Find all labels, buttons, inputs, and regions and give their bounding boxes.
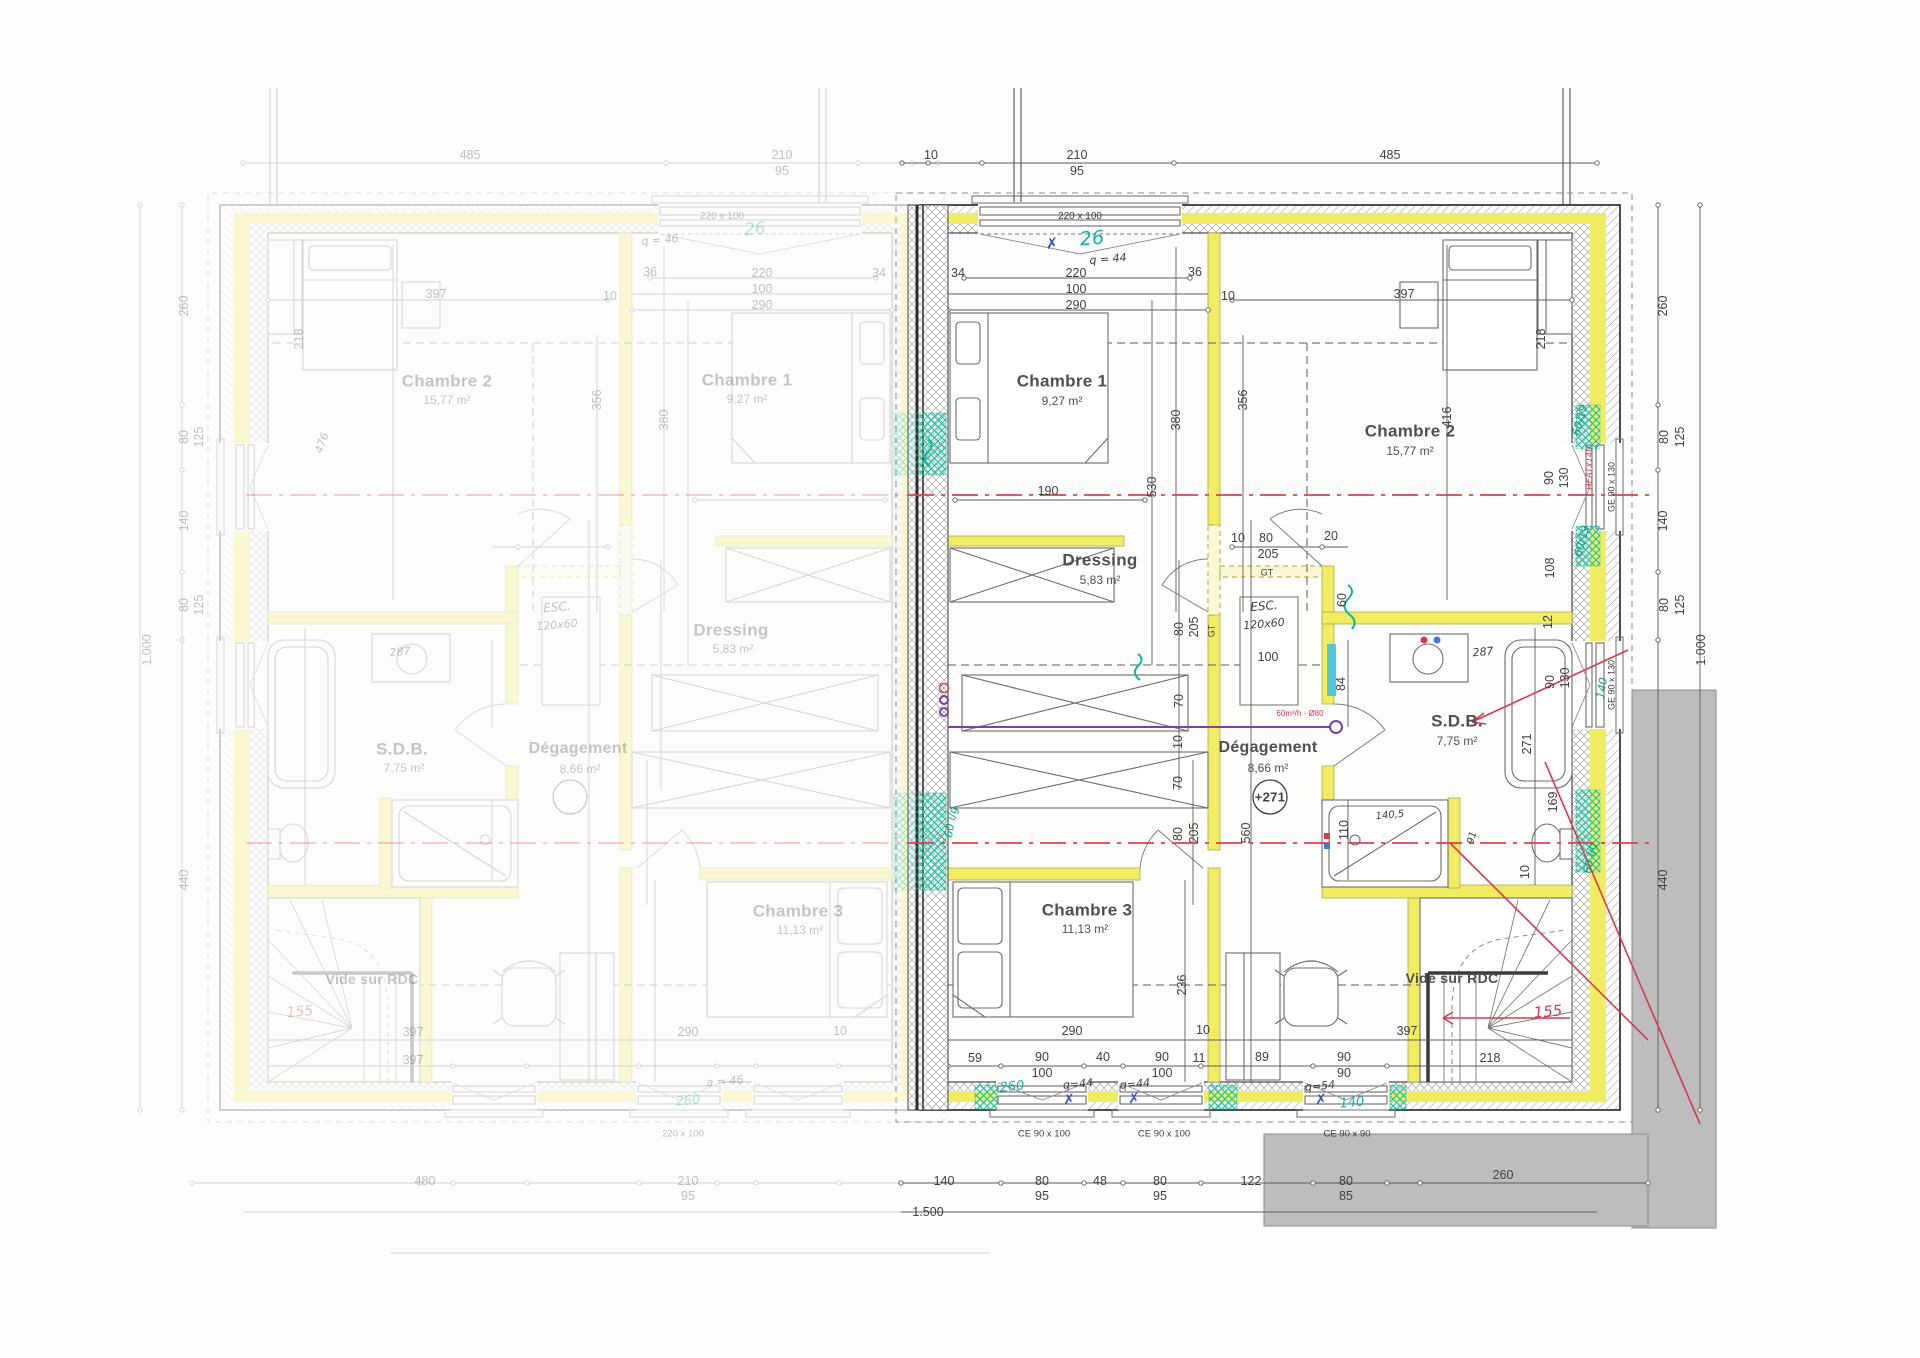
floor-plan-scan: Plan de l'étage — scan annoté (maison ju…	[0, 0, 1920, 1358]
floor-plan-svg	[0, 0, 1920, 1358]
radiator-mark	[1327, 644, 1336, 696]
party-wall	[908, 205, 948, 1110]
left-unit-faded	[138, 88, 944, 1212]
right-unit-linework	[896, 88, 1702, 1212]
